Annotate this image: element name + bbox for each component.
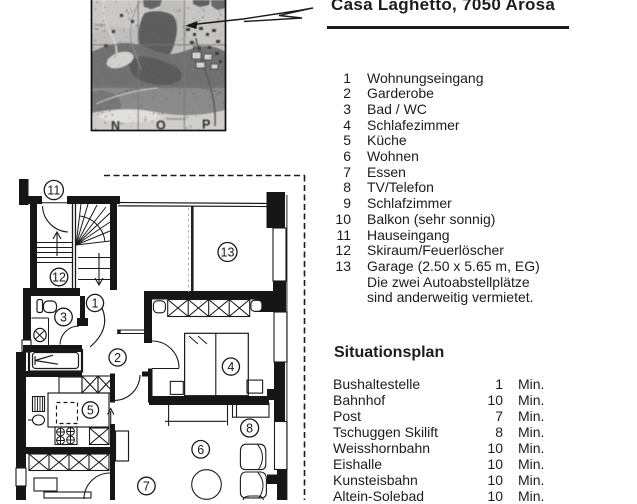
svg-text:8: 8 [246, 422, 253, 436]
svg-text:13: 13 [221, 246, 235, 260]
svg-text:5: 5 [87, 404, 94, 418]
svg-text:4: 4 [227, 360, 234, 374]
svg-text:3: 3 [60, 311, 67, 325]
svg-text:2: 2 [114, 351, 121, 365]
svg-text:7: 7 [143, 480, 150, 494]
svg-text:1: 1 [92, 297, 99, 311]
svg-text:11: 11 [47, 184, 60, 198]
svg-text:12: 12 [52, 271, 66, 285]
svg-text:6: 6 [197, 443, 204, 457]
